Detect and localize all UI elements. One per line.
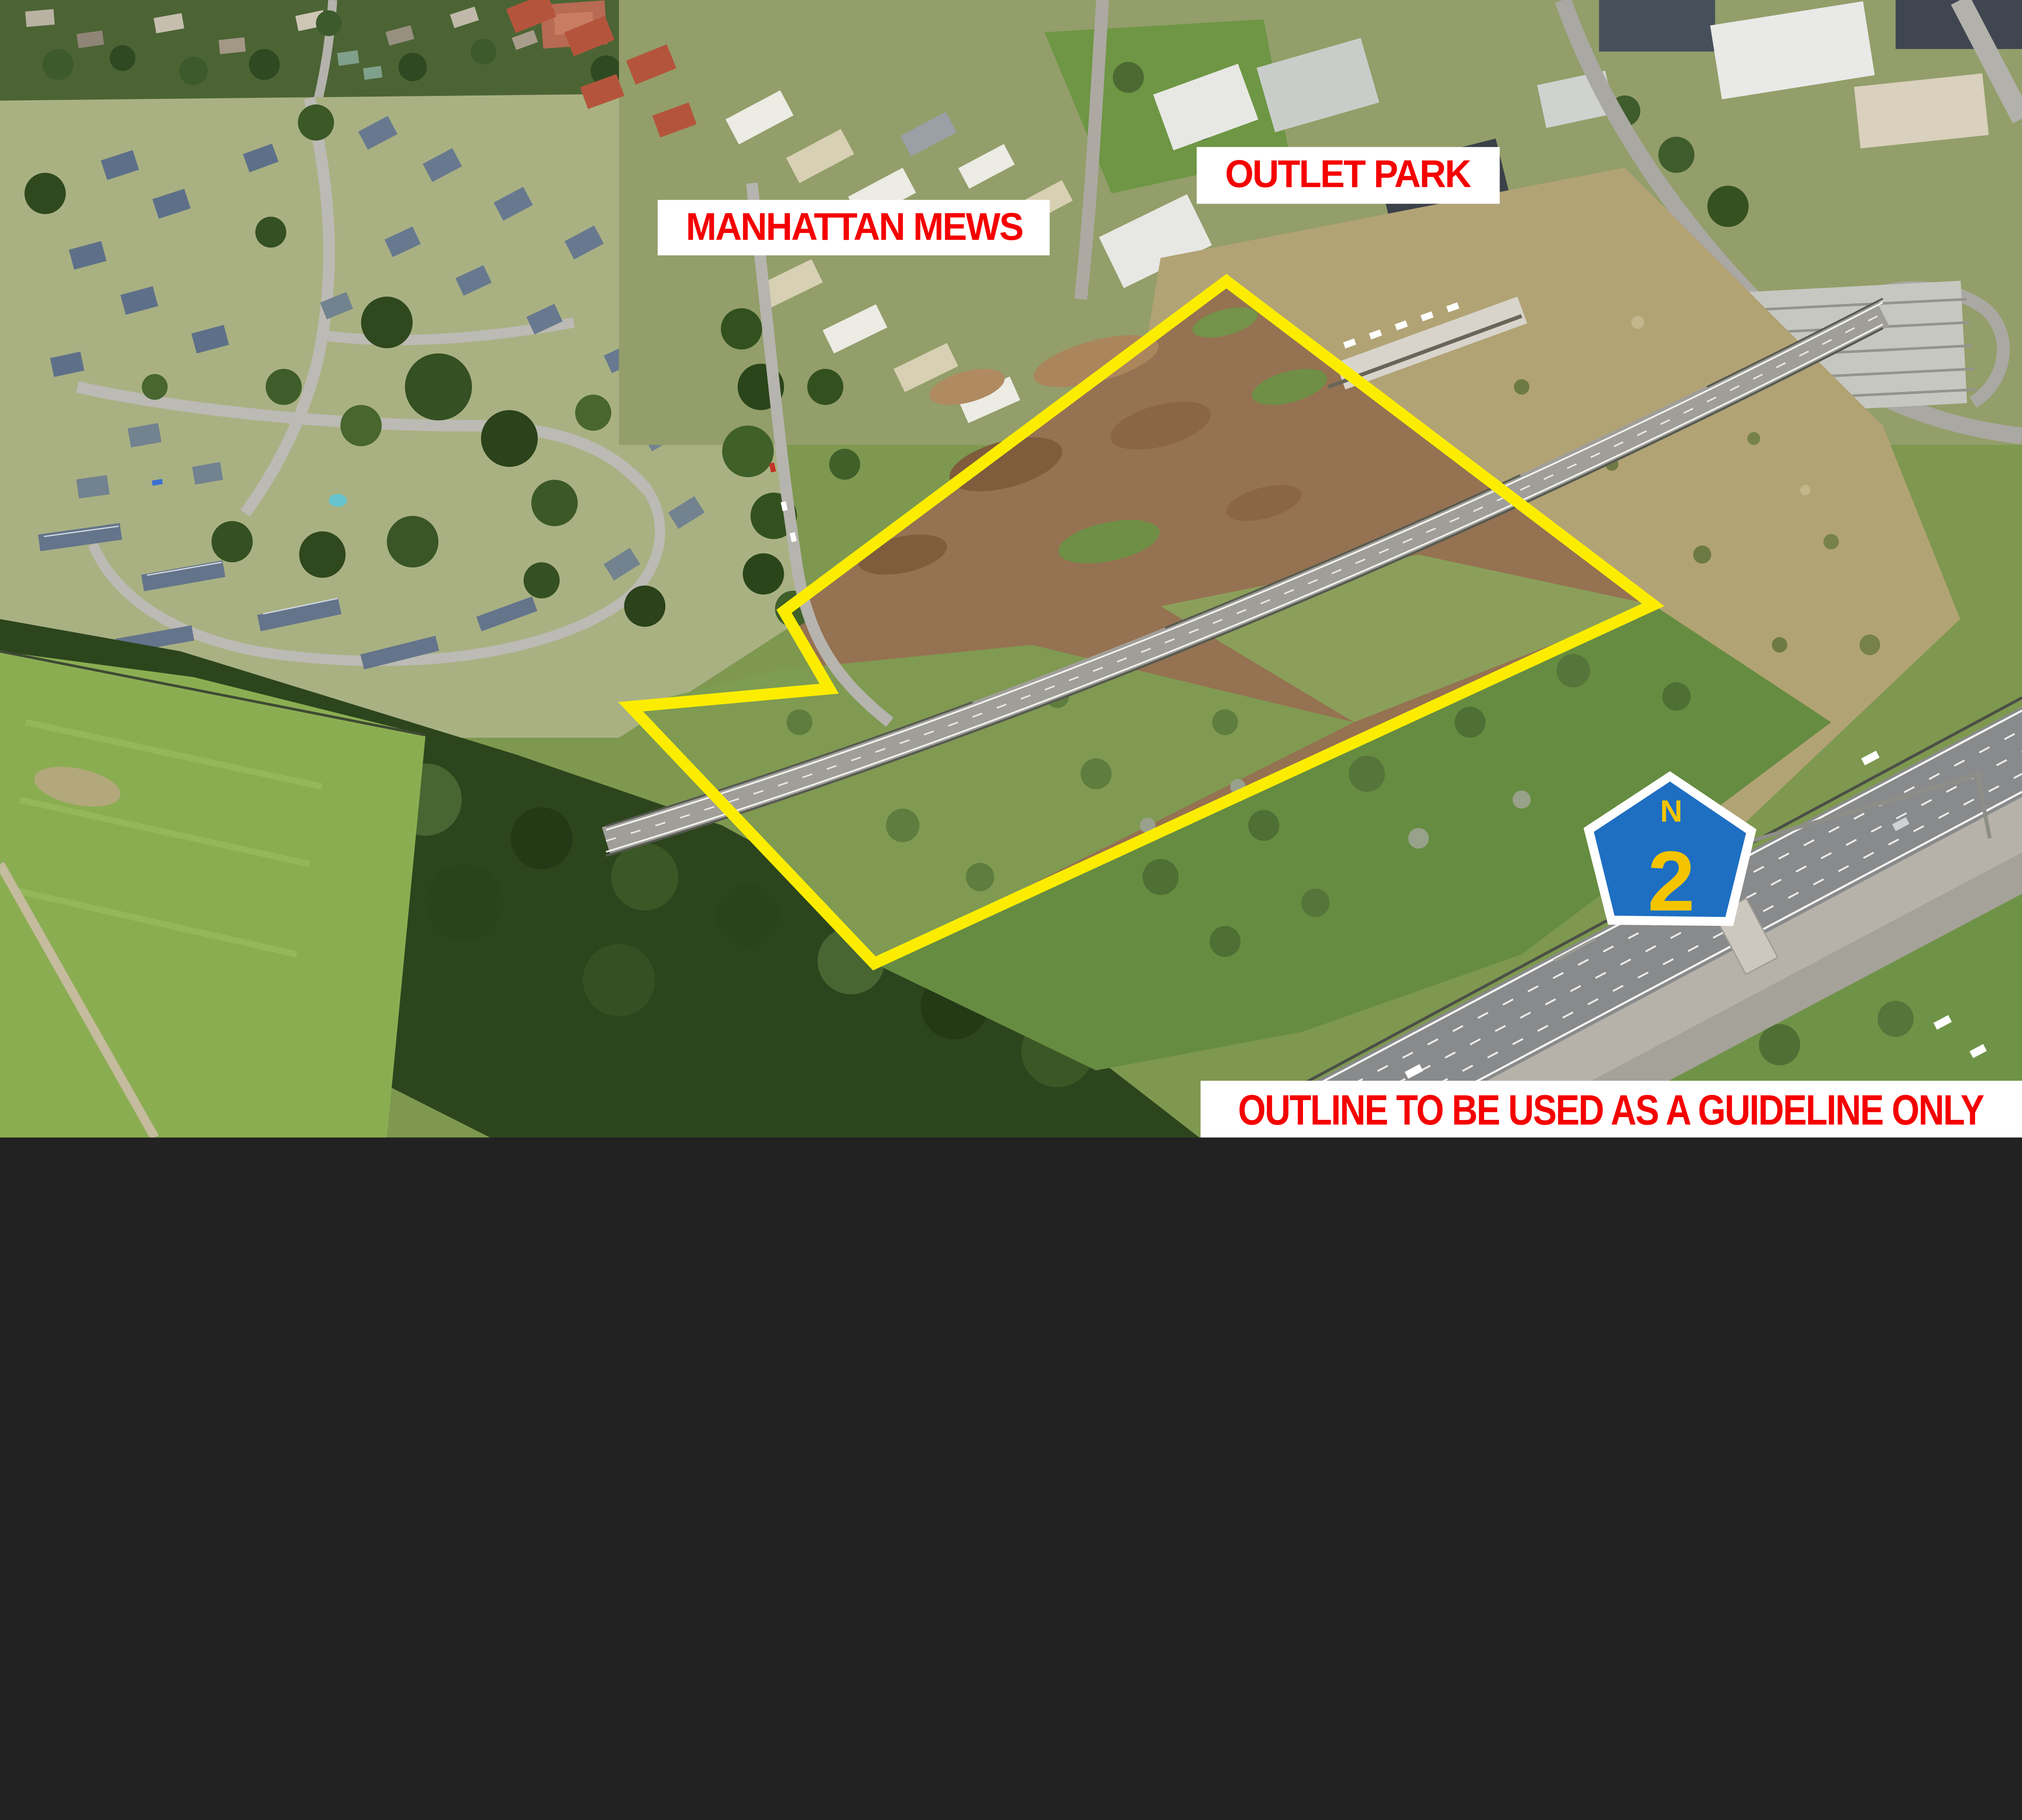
green-field bbox=[0, 651, 425, 1137]
manhattan-mews-label-text: MANHATTAN MEWS bbox=[685, 208, 1022, 247]
sign-route-prefix: N bbox=[1660, 794, 1682, 828]
sign-route-number: 2 bbox=[1648, 833, 1695, 929]
disclaimer-banner: OUTLINE TO BE USED AS A GUIDELINE ONLY bbox=[1201, 1081, 2022, 1137]
disclaimer-banner-text: OUTLINE TO BE USED AS A GUIDELINE ONLY bbox=[1239, 1088, 1984, 1130]
aerial-photo: N 2 MANHATTAN MEWS OUTLET PARK OUTLINE T… bbox=[0, 0, 2022, 1138]
aerial-photo-scene: N 2 bbox=[0, 0, 2022, 1138]
outlet-park-label: OUTLET PARK bbox=[1197, 147, 1500, 204]
outlet-park-label-text: OUTLET PARK bbox=[1226, 156, 1471, 195]
manhattan-mews-label: MANHATTAN MEWS bbox=[658, 200, 1049, 255]
